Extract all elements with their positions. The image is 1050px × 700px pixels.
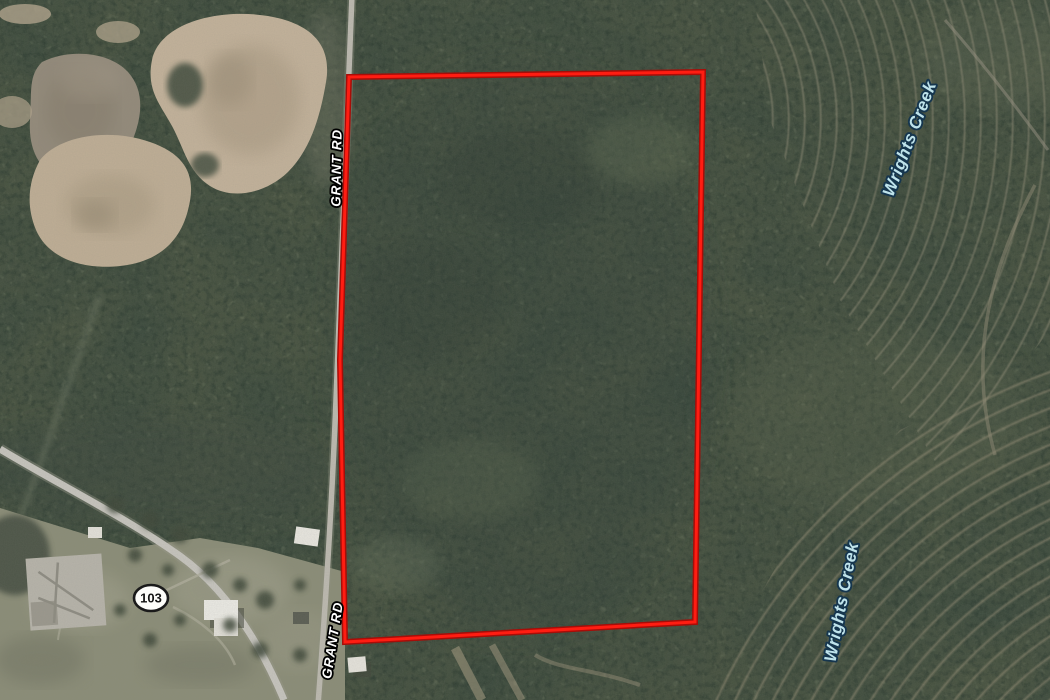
route-103-shield: 103 [134, 585, 168, 611]
map-viewport: GRANT RD GRANT RD GRANT RD GRANT RD Wrig… [0, 0, 1050, 700]
road-label-grant-rd-top: GRANT RD [328, 129, 344, 207]
aerial-map: GRANT RD GRANT RD GRANT RD GRANT RD Wrig… [0, 0, 1050, 700]
route-shield-number: 103 [140, 591, 162, 606]
